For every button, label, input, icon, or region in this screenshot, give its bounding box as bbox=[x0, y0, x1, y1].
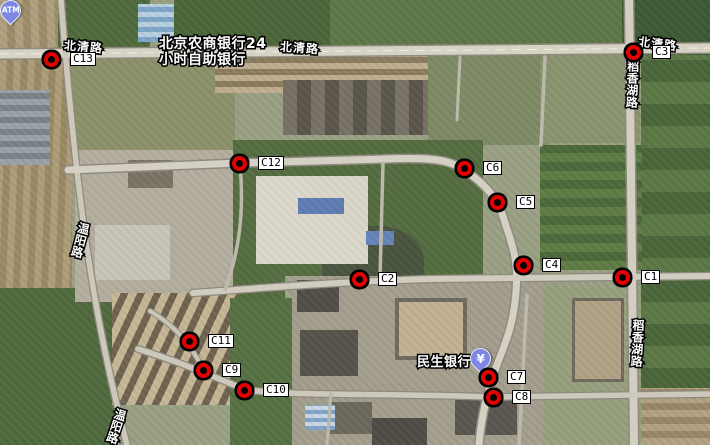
marker-label-c1: C1 bbox=[641, 270, 660, 284]
marker-label-c5: C5 bbox=[516, 195, 535, 209]
map-marker-c8[interactable] bbox=[490, 394, 497, 401]
poi-label-line1: 北京农商银行24 bbox=[159, 36, 266, 52]
atm-pin-text: ATM bbox=[2, 6, 20, 15]
poi-label-minsheng-bank[interactable]: 民生银行 bbox=[417, 355, 471, 371]
marker-label-c6: C6 bbox=[483, 161, 502, 175]
map-marker-c10[interactable] bbox=[241, 387, 248, 394]
map-marker-c9[interactable] bbox=[200, 367, 207, 374]
bank-pin-text: ¥ bbox=[476, 352, 484, 366]
map-marker-c11[interactable] bbox=[186, 338, 193, 345]
poi-label-line2: 小时自助银行 bbox=[159, 52, 266, 68]
poi-label-rural-commercial-bank[interactable]: 北京农商银行24 小时自助银行 bbox=[159, 36, 266, 68]
map-marker-c13[interactable] bbox=[48, 56, 55, 63]
marker-label-c3: C3 bbox=[652, 45, 671, 59]
marker-label-c4: C4 bbox=[542, 258, 561, 272]
map-marker-c3[interactable] bbox=[630, 49, 637, 56]
map-marker-c7[interactable] bbox=[485, 374, 492, 381]
road-label-4: 稻香湖路 bbox=[630, 319, 644, 368]
map-marker-c5[interactable] bbox=[494, 199, 501, 206]
road-label-1: 北清路 bbox=[280, 41, 320, 57]
poi-label-line1: 民生银行 bbox=[417, 355, 471, 371]
marker-label-c9: C9 bbox=[222, 363, 241, 377]
marker-label-c10: C10 bbox=[263, 383, 289, 397]
map-marker-c6[interactable] bbox=[461, 165, 468, 172]
marker-label-c12: C12 bbox=[258, 156, 284, 170]
marker-label-c13: C13 bbox=[70, 52, 96, 66]
map-marker-c12[interactable] bbox=[236, 160, 243, 167]
road-label-3: 稻香湖路 bbox=[625, 60, 639, 108]
marker-label-c11: C11 bbox=[208, 334, 234, 348]
satellite-map[interactable]: 北清路北清路北清路稻香湖路稻香湖路温阳路温阳路 ATM 北京农商银行24 小时自… bbox=[0, 0, 710, 445]
marker-label-c7: C7 bbox=[507, 370, 526, 384]
map-marker-c1[interactable] bbox=[619, 274, 626, 281]
map-marker-c2[interactable] bbox=[356, 276, 363, 283]
map-marker-c4[interactable] bbox=[520, 262, 527, 269]
marker-label-c2: C2 bbox=[378, 272, 397, 286]
marker-layer: C1C2C3C4C5C6C7C8C9C10C11C12C13 bbox=[0, 0, 710, 445]
marker-label-c8: C8 bbox=[512, 390, 531, 404]
